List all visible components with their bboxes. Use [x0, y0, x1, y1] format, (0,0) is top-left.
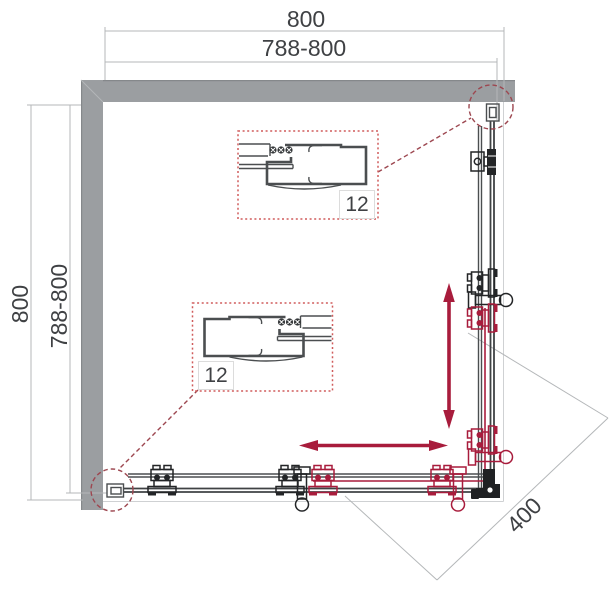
right-panel-rails	[479, 121, 495, 497]
bottom-rail-end-cap	[107, 484, 124, 497]
dim-label-top-overall: 800	[287, 7, 325, 31]
wall-left	[81, 80, 103, 510]
wall-bracket	[471, 149, 496, 175]
roller-bracket-sliding	[428, 466, 456, 496]
roller-bracket	[276, 466, 304, 496]
slide-arrow-horizontal	[299, 440, 448, 451]
detail-leader-top	[378, 118, 471, 172]
glass-thickness-label: 12	[339, 190, 375, 219]
bottom-panel-rails	[123, 474, 497, 492]
glass-thickness-label: 12	[198, 361, 234, 390]
wall-top	[81, 80, 515, 102]
roller-bracket-sliding	[309, 466, 337, 496]
roller-bracket-sliding	[468, 426, 498, 454]
slide-arrow-vertical	[443, 283, 455, 429]
sliding-door-glass-highlight	[313, 308, 486, 488]
dim-label-left-adjustable: 788-800	[47, 264, 71, 348]
roller-bracket-sliding	[468, 304, 498, 332]
roller-bracket	[468, 269, 498, 297]
shower-enclosure-plan-drawing: 800 788-800 800 788-800 400 12 12	[0, 0, 611, 600]
detail-leader-bottom	[120, 390, 198, 468]
dim-label-left-overall: 800	[8, 285, 32, 323]
dim-corner-entry	[345, 333, 608, 580]
roller-bracket	[148, 466, 176, 496]
dim-label-top-adjustable: 788-800	[262, 36, 346, 60]
